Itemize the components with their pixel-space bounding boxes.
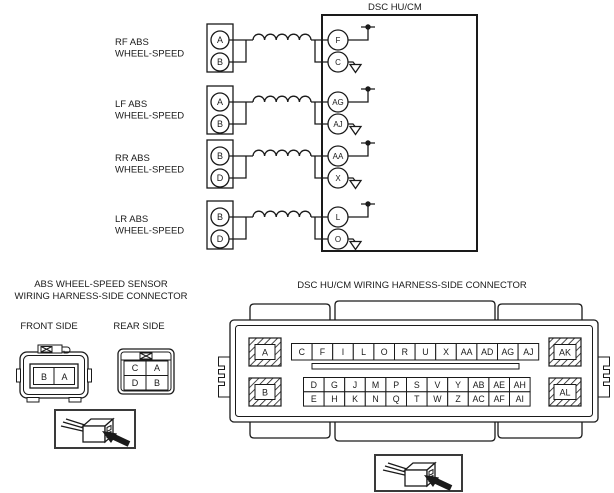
corner-terminal-a: A: [249, 338, 281, 366]
sensor-pin: A: [217, 97, 223, 107]
pin-letter: Q: [393, 394, 400, 404]
front-pin: A: [61, 372, 67, 382]
dsc-pin: X: [335, 174, 341, 183]
rear-pin: A: [154, 363, 160, 373]
wiring-diagram-canvas: DSC HU/CM RF ABS WHEEL-SPEED A B F C LF …: [0, 0, 614, 493]
pin-letter: AD: [481, 347, 493, 357]
pin-letter: E: [311, 394, 317, 404]
sensor-label-line2: WHEEL-SPEED: [115, 226, 184, 237]
top-tab: [250, 304, 330, 320]
page: DSC HU/CM RF ABS WHEEL-SPEED A B F C LF …: [0, 0, 614, 493]
sensor-row-rr: RR ABS WHEEL-SPEED B D AA X: [115, 140, 375, 189]
dsc-pin: AG: [332, 98, 344, 107]
dsc-connector-title: DSC HU/CM WIRING HARNESS-SIDE CONNECTOR: [297, 280, 527, 291]
pin-letter: T: [414, 394, 420, 404]
pin-letter: AJ: [523, 347, 533, 357]
pin-letter: AC: [472, 394, 485, 404]
rear-pin: D: [132, 378, 139, 388]
foot: [69, 398, 81, 403]
pin-letter: G: [331, 380, 338, 390]
dsc-pin: O: [335, 235, 341, 244]
sensor-label-line2: WHEEL-SPEED: [115, 111, 184, 122]
pin-letter: R: [402, 347, 408, 357]
sensor-row-lr: LR ABS WHEEL-SPEED B D L O: [115, 201, 375, 250]
dsc-connector-section: DSC HU/CM WIRING HARNESS-SIDE CONNECTOR …: [219, 280, 610, 491]
dsc-pin: L: [336, 213, 341, 222]
sensor-label-line1: RR ABS: [115, 153, 150, 164]
dsc-pin: AJ: [333, 120, 342, 129]
pin-letter: J: [353, 380, 357, 390]
bottom-tab: [498, 422, 582, 438]
pin-letter: F: [320, 347, 326, 357]
sensor-pin: D: [217, 234, 224, 244]
rear-side-connector: C A D B: [118, 349, 174, 394]
pin-letter: K: [352, 394, 358, 404]
foot: [27, 398, 39, 403]
slot-bar: [312, 364, 519, 370]
bottom-tab: [335, 422, 495, 441]
corner-terminal-al: AL: [549, 378, 581, 406]
pin-letter: U: [422, 347, 428, 357]
pin-letter: V: [434, 380, 440, 390]
pin-letter: Z: [455, 394, 461, 404]
corner-pin: B: [262, 388, 268, 398]
side-bracket-right: [598, 357, 610, 397]
top-tab: [335, 301, 495, 320]
top-tab: [498, 304, 582, 320]
pin-letter: C: [299, 347, 306, 357]
rear-pin: B: [154, 378, 160, 388]
pin-letter: AH: [514, 380, 526, 390]
sensor-label-line2: WHEEL-SPEED: [115, 49, 184, 60]
pin-letter: N: [372, 394, 378, 404]
pin-letter: O: [381, 347, 388, 357]
sensor-label-line1: LF ABS: [115, 99, 147, 110]
pin-letter: AG: [501, 347, 514, 357]
rear-pin: C: [132, 363, 139, 373]
pin-letter: P: [393, 380, 399, 390]
pin-letter: L: [361, 347, 366, 357]
connector-body: [230, 320, 598, 422]
pin-row-middle: DGJMPSVYABAEAH: [304, 378, 531, 392]
sensor-pin: B: [217, 57, 223, 67]
dsc-pin: F: [336, 36, 341, 45]
pin-letter: X: [443, 347, 449, 357]
section-title-line1: ABS WHEEL-SPEED SENSOR: [34, 279, 168, 290]
pin-letter: H: [331, 394, 337, 404]
side-tab: [17, 369, 21, 382]
corner-terminal-b: B: [249, 378, 281, 406]
wiring-diagram: DSC HU/CM RF ABS WHEEL-SPEED A B F C LF …: [115, 2, 477, 251]
sensor-pin: D: [217, 173, 224, 183]
sensor-label-line1: LR ABS: [115, 214, 148, 225]
front-side-label: FRONT SIDE: [20, 321, 77, 332]
pin-letter: D: [311, 380, 317, 390]
pin-letter: S: [414, 380, 420, 390]
sensor-pin: B: [217, 151, 223, 161]
sensor-pin: A: [217, 35, 223, 45]
sensor-connector-section: ABS WHEEL-SPEED SENSOR WIRING HARNESS-SI…: [15, 279, 188, 448]
sensor-pin: B: [217, 212, 223, 222]
front-side-connector: B A: [17, 345, 92, 402]
corner-pin: AK: [559, 348, 571, 358]
bottom-tab: [250, 422, 330, 438]
pin-row-bottom: EHKNQTWZACAFAI: [304, 392, 531, 406]
pin-letter: AI: [516, 394, 524, 404]
pin-row-top: CFILORUXAAADAGAJ: [292, 344, 539, 361]
side-tab: [88, 369, 92, 382]
dsc-pin: C: [335, 58, 341, 67]
pin-letter: Y: [455, 380, 461, 390]
dsc-pin: AA: [333, 152, 344, 161]
sensor-pin: B: [217, 119, 223, 129]
sensor-row-rf: RF ABS WHEEL-SPEED A B F C: [115, 24, 375, 73]
pin-letter: W: [433, 394, 442, 404]
corner-terminal-ak: AK: [549, 338, 581, 366]
section-title-line2: WIRING HARNESS-SIDE CONNECTOR: [15, 291, 188, 302]
pin-letter: M: [372, 380, 379, 390]
side-bracket-left: [219, 357, 231, 397]
sensor-row-lf: LF ABS WHEEL-SPEED A B AG AJ: [115, 86, 375, 135]
pin-letter: AF: [494, 394, 506, 404]
pin-letter: AE: [493, 380, 505, 390]
rear-side-label: REAR SIDE: [113, 321, 164, 332]
corner-pin: A: [262, 348, 268, 358]
pin-letter: I: [342, 347, 344, 357]
pin-letter: AB: [473, 380, 485, 390]
sensor-label-line1: RF ABS: [115, 37, 149, 48]
pin-letter: AA: [461, 347, 473, 357]
front-pin: B: [41, 372, 47, 382]
sensor-label-line2: WHEEL-SPEED: [115, 165, 184, 176]
corner-pin: AL: [559, 388, 570, 398]
dsc-box-title: DSC HU/CM: [368, 2, 422, 13]
